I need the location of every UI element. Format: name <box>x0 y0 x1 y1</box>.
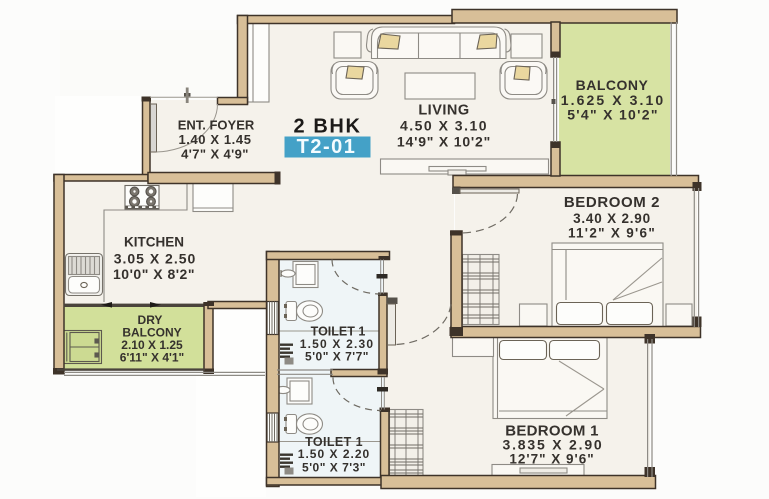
svg-text:2 BHK: 2 BHK <box>293 116 361 138</box>
svg-text:4'7" X 4'9": 4'7" X 4'9" <box>181 147 249 162</box>
svg-text:6'11" X 4'1": 6'11" X 4'1" <box>120 351 184 365</box>
svg-text:5'0" X 7'7": 5'0" X 7'7" <box>305 350 369 364</box>
svg-text:10'0" X 8'2": 10'0" X 8'2" <box>113 266 195 282</box>
svg-text:5'4" X 10'2": 5'4" X 10'2" <box>567 107 659 123</box>
svg-text:T2-01: T2-01 <box>297 136 357 158</box>
svg-text:1.50 X 2.20: 1.50 X 2.20 <box>298 447 370 461</box>
svg-text:BALCONY: BALCONY <box>576 77 649 93</box>
svg-text:3.835 X 2.90: 3.835 X 2.90 <box>503 437 604 453</box>
svg-text:BEDROOM 2: BEDROOM 2 <box>564 194 660 211</box>
svg-text:12'7" X 9'6": 12'7" X 9'6" <box>509 452 594 467</box>
svg-text:3.40 X 2.90: 3.40 X 2.90 <box>573 211 651 226</box>
svg-text:LIVING: LIVING <box>418 103 469 119</box>
svg-text:5'0" X 7'3": 5'0" X 7'3" <box>302 461 366 475</box>
svg-text:ENT. FOYER: ENT. FOYER <box>178 118 255 133</box>
svg-text:KITCHEN: KITCHEN <box>124 235 184 250</box>
svg-text:14'9" X 10'2": 14'9" X 10'2" <box>397 134 491 150</box>
svg-text:3.05 X 2.50: 3.05 X 2.50 <box>114 251 197 267</box>
svg-text:4.50 X 3.10: 4.50 X 3.10 <box>400 118 488 134</box>
svg-text:1.40 X 1.45: 1.40 X 1.45 <box>178 132 251 147</box>
svg-text:11'2" X 9'6": 11'2" X 9'6" <box>568 226 656 241</box>
